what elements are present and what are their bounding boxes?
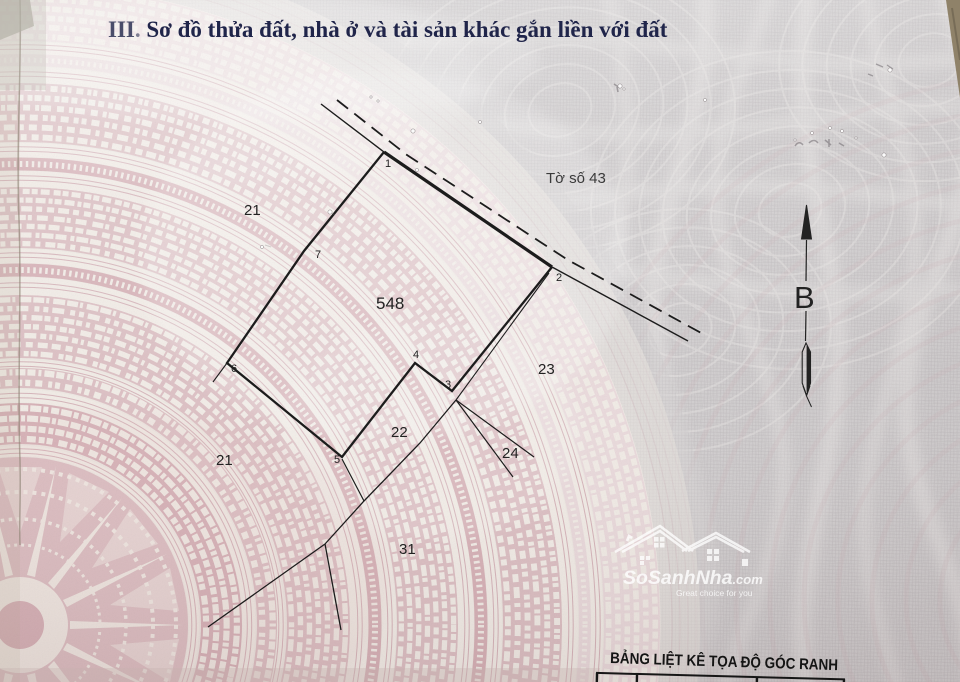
svg-text:2: 2 xyxy=(556,272,562,284)
svg-text:23: 23 xyxy=(538,361,555,378)
svg-text:4: 4 xyxy=(413,349,419,361)
svg-text:B: B xyxy=(794,280,815,315)
svg-text:III. Sơ đồ thửa đất, nhà ở và: III. Sơ đồ thửa đất, nhà ở và tài sản kh… xyxy=(108,17,668,42)
svg-text:Great choice for you: Great choice for you xyxy=(676,588,753,598)
svg-text:Tờ số 43: Tờ số 43 xyxy=(546,170,606,187)
svg-text:7: 7 xyxy=(315,249,321,261)
svg-text:5: 5 xyxy=(334,454,340,466)
svg-text:31: 31 xyxy=(399,541,416,558)
svg-text:3: 3 xyxy=(445,379,451,391)
svg-text:548: 548 xyxy=(376,294,404,313)
svg-text:21: 21 xyxy=(244,202,261,219)
svg-text:22: 22 xyxy=(391,424,408,441)
svg-text:24: 24 xyxy=(502,445,519,462)
svg-text:6: 6 xyxy=(231,363,237,375)
svg-text:1: 1 xyxy=(385,158,391,170)
svg-text:21: 21 xyxy=(216,452,233,469)
